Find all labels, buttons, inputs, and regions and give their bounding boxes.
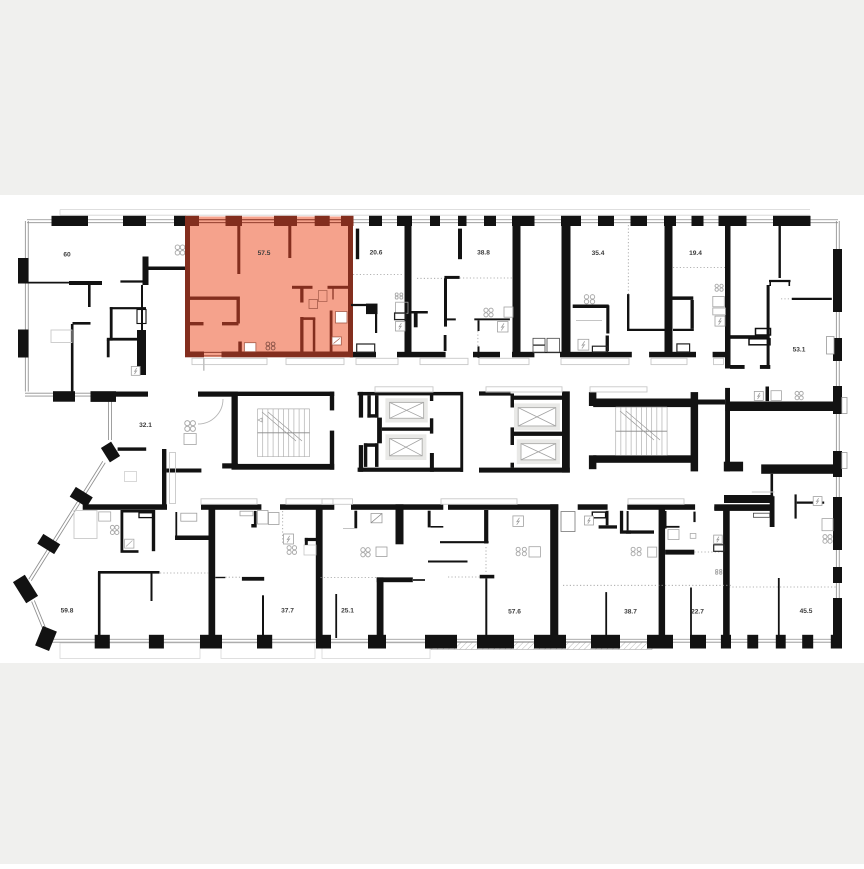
svg-text:59.8: 59.8: [61, 607, 74, 614]
svg-text:25.1: 25.1: [341, 607, 354, 614]
svg-text:22.7: 22.7: [691, 608, 704, 615]
svg-text:57.5: 57.5: [258, 250, 271, 257]
svg-text:37.7: 37.7: [281, 607, 294, 614]
svg-text:53.1: 53.1: [793, 346, 806, 353]
svg-text:38.8: 38.8: [477, 249, 490, 256]
svg-text:60: 60: [63, 251, 71, 258]
svg-text:19.4: 19.4: [689, 250, 702, 257]
svg-text:35.4: 35.4: [592, 250, 605, 257]
svg-text:38.7: 38.7: [624, 608, 637, 615]
svg-text:45.5: 45.5: [800, 608, 813, 615]
svg-text:32.1: 32.1: [139, 422, 152, 429]
svg-text:57.6: 57.6: [508, 608, 521, 615]
svg-text:20.6: 20.6: [370, 249, 383, 256]
